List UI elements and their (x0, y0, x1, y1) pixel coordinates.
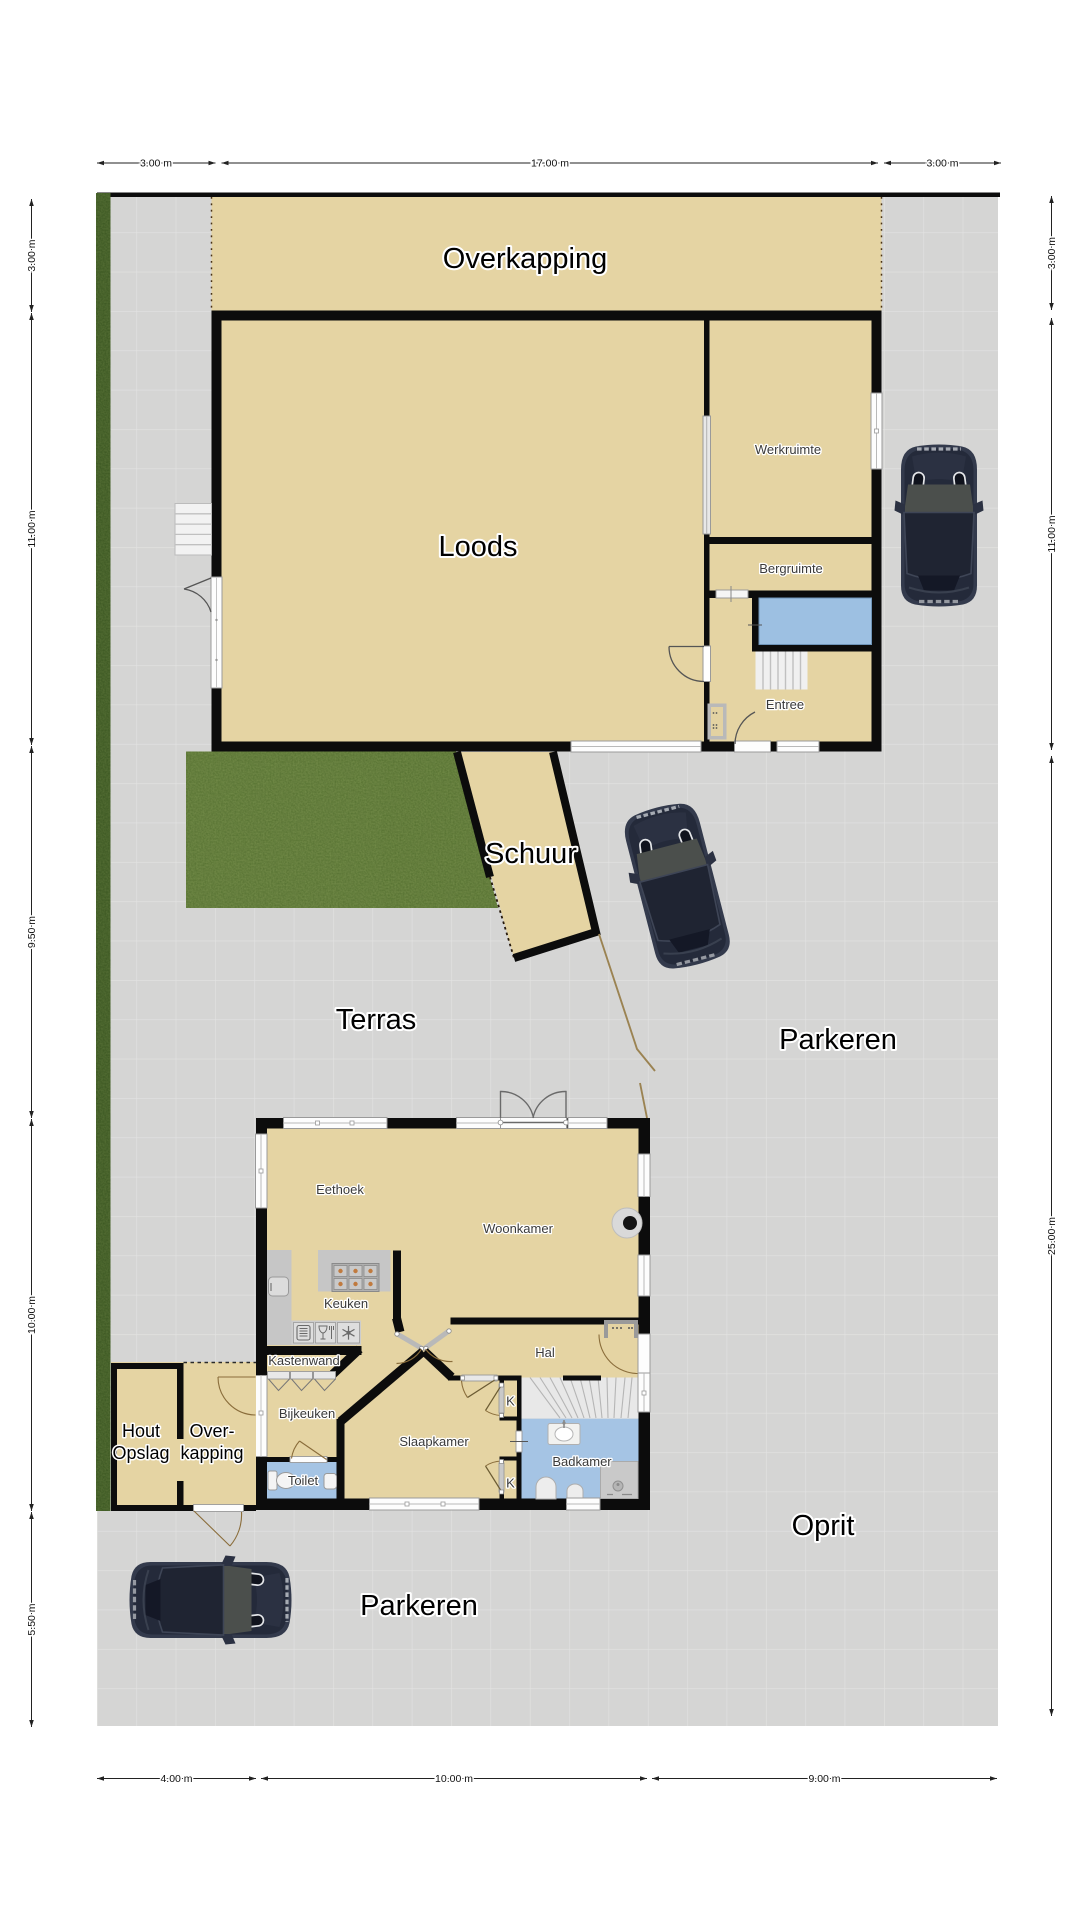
svg-text:Parkeren: Parkeren (360, 1590, 478, 1622)
svg-text:Opslag: Opslag (112, 1443, 169, 1463)
svg-text:Bijkeuken: Bijkeuken (279, 1406, 335, 1421)
svg-text:Bergruimte: Bergruimte (759, 561, 823, 576)
svg-text:11.00 m: 11.00 m (26, 510, 38, 547)
svg-text:Keuken: Keuken (324, 1296, 368, 1311)
svg-text:Terras: Terras (336, 1004, 417, 1036)
svg-text:Woonkamer: Woonkamer (483, 1221, 554, 1236)
svg-text:K: K (506, 1476, 515, 1491)
svg-text:9.00 m: 9.00 m (808, 1773, 840, 1785)
svg-text:5.50 m: 5.50 m (26, 1603, 38, 1635)
svg-text:11.00 m: 11.00 m (1046, 515, 1058, 552)
svg-text:10.00 m: 10.00 m (435, 1773, 473, 1785)
svg-text:Slaapkamer: Slaapkamer (399, 1434, 469, 1449)
svg-text:Eethoek: Eethoek (316, 1182, 364, 1197)
svg-text:Badkamer: Badkamer (552, 1454, 612, 1469)
svg-text:Loods: Loods (438, 531, 517, 563)
svg-text:Overkapping: Overkapping (443, 243, 607, 275)
svg-text:3.00 m: 3.00 m (140, 158, 172, 170)
svg-text:Over-: Over- (190, 1421, 235, 1441)
svg-text:Oprit: Oprit (792, 1510, 855, 1542)
svg-text:Kastenwand: Kastenwand (268, 1353, 340, 1368)
svg-text:3.00 m: 3.00 m (26, 239, 38, 271)
svg-text:Hout: Hout (122, 1421, 160, 1441)
svg-text:K: K (506, 1394, 515, 1409)
svg-text:Toilet: Toilet (288, 1473, 319, 1488)
svg-text:Hal: Hal (535, 1345, 555, 1360)
svg-text:17.00 m: 17.00 m (531, 158, 569, 170)
svg-text:3.00 m: 3.00 m (1046, 237, 1058, 269)
svg-text:Parkeren: Parkeren (779, 1024, 897, 1056)
svg-text:3.00 m: 3.00 m (926, 158, 958, 170)
svg-text:4.00 m: 4.00 m (160, 1773, 192, 1785)
svg-text:Werkruimte: Werkruimte (755, 442, 821, 457)
svg-text:10.00 m: 10.00 m (26, 1296, 38, 1334)
svg-text:Entree: Entree (766, 697, 804, 712)
svg-text:25.00 m: 25.00 m (1046, 1217, 1058, 1255)
svg-text:kapping: kapping (180, 1443, 243, 1463)
svg-text:Schuur: Schuur (485, 838, 577, 870)
svg-text:9.50 m: 9.50 m (26, 916, 38, 948)
